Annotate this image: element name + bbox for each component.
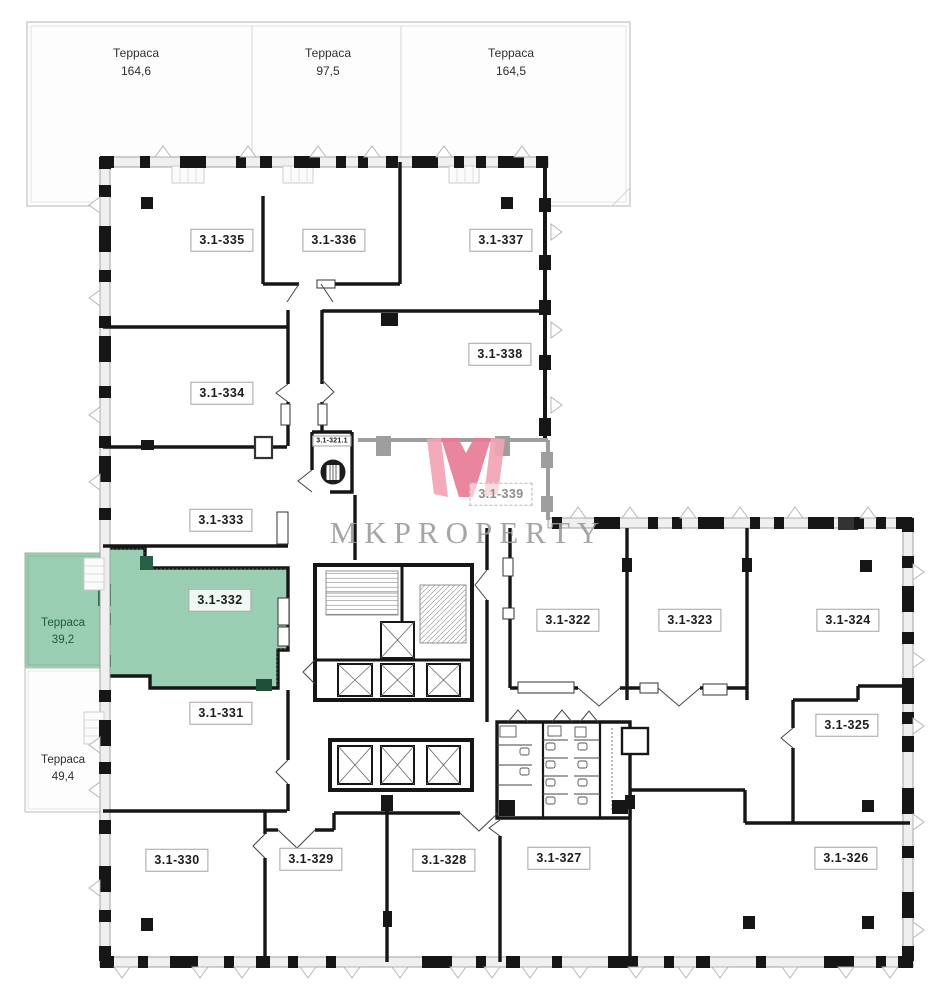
facade-column [902, 518, 914, 532]
window-vent-icon [913, 922, 924, 938]
floor-plan: Терраса 164,6 Терраса 97,5 Терраса 164,5… [0, 0, 947, 989]
window-vent-icon [114, 967, 130, 978]
facade-column [824, 956, 854, 968]
facade-column [224, 956, 234, 968]
facade-column [536, 156, 548, 168]
facade-column [902, 846, 914, 858]
unit-label-3-1-328[interactable]: 3.1-328 [412, 849, 475, 872]
facade-column [422, 956, 452, 968]
window-vent-icon [450, 967, 466, 978]
unit-label-3-1-326[interactable]: 3.1-326 [814, 847, 877, 870]
window-vent-icon [234, 967, 250, 978]
facade-column [138, 956, 148, 968]
facade-column [140, 156, 150, 168]
facade-column [876, 956, 886, 968]
facade-column [539, 355, 551, 370]
facade-column [854, 517, 864, 529]
facade-column [539, 418, 551, 436]
facade-column [774, 517, 784, 529]
terrace-label-49-4: Терраса 49,4 [41, 752, 85, 787]
facade-column [698, 517, 724, 529]
facade-column [902, 788, 914, 814]
facade-column [608, 956, 638, 968]
unit-label-3-1-330[interactable]: 3.1-330 [145, 849, 208, 872]
facade-column [170, 956, 198, 968]
facade-column [99, 226, 111, 252]
facade-column [902, 632, 914, 644]
facade-column [99, 910, 111, 922]
unit-label-3-1-334[interactable]: 3.1-334 [190, 382, 253, 405]
facade-column [539, 255, 551, 270]
window-vent-icon [89, 290, 100, 306]
lift-icon [321, 460, 346, 485]
window-vent-icon [882, 967, 898, 978]
unit-label-3-1-321-1[interactable]: 3.1-321.1 [312, 436, 351, 447]
facade-column [902, 678, 914, 704]
facade-column [539, 198, 551, 212]
facade-column [902, 946, 914, 961]
facade-column [99, 456, 111, 482]
facade-column [99, 946, 111, 961]
facade-column [552, 956, 562, 968]
facade-column [336, 156, 346, 168]
facade-column [256, 956, 270, 968]
window-vent-icon [551, 224, 562, 240]
highlighted-unit-area[interactable] [103, 548, 288, 691]
window-vent-icon [712, 967, 728, 978]
facade-column [498, 156, 524, 168]
unit-label-3-1-325[interactable]: 3.1-325 [815, 714, 878, 737]
facade-column [506, 956, 520, 968]
facade-column [99, 336, 111, 362]
window-vent-icon [192, 967, 208, 978]
window-vent-icon [89, 407, 100, 423]
window-vent-icon [551, 322, 562, 338]
facade-column [99, 690, 111, 702]
facade-column [236, 156, 246, 168]
facade-column [99, 185, 111, 197]
unit-label-3-1-327[interactable]: 3.1-327 [527, 847, 590, 870]
facade-column [756, 956, 766, 968]
facade-column [476, 956, 486, 968]
wall-block [381, 313, 398, 326]
facade-column [664, 956, 674, 968]
window-vent-icon [782, 967, 798, 978]
window-vent-icon [678, 967, 694, 978]
facade-column [808, 517, 834, 529]
window-vent-icon [572, 967, 588, 978]
unit-label-3-1-336[interactable]: 3.1-336 [302, 229, 365, 252]
unit-label-3-1-337[interactable]: 3.1-337 [469, 229, 532, 252]
unit-label-3-1-333[interactable]: 3.1-333 [189, 509, 252, 532]
window-vent-icon [732, 507, 748, 518]
facade-column [99, 157, 111, 169]
window-vent-icon [680, 507, 696, 518]
facade-column [902, 712, 914, 724]
mkproperty-logo-text: MKPROPERTY [330, 515, 607, 551]
window-vent-icon [913, 718, 924, 734]
window-vent-icon [300, 967, 316, 978]
facade-column [902, 892, 914, 918]
terrace-label-164-6: Терраса 164,6 [113, 44, 159, 80]
window-vent-icon [622, 507, 638, 518]
facade-column [672, 517, 682, 529]
unit-label-3-1-323[interactable]: 3.1-323 [658, 609, 721, 632]
window-vent-icon [484, 967, 500, 978]
window-vent-icon [392, 967, 408, 978]
unit-label-3-1-329[interactable]: 3.1-329 [279, 848, 342, 871]
facade-column [902, 586, 914, 612]
window-vent-icon [522, 967, 538, 978]
terrace-label-39-2: Терраса 39,2 [41, 615, 85, 650]
facade-column [539, 300, 551, 315]
facade-column [902, 736, 914, 752]
facade-column [99, 508, 111, 520]
window-vent-icon [787, 507, 803, 518]
window-vent-icon [838, 967, 854, 978]
window-vent-icon [860, 507, 876, 518]
facade-column [358, 156, 368, 168]
facade-column [99, 762, 111, 774]
unit-label-3-1-339[interactable]: 3.1-339 [469, 483, 532, 506]
facade-column [180, 156, 206, 168]
unit-label-3-1-338[interactable]: 3.1-338 [468, 343, 531, 366]
facade-column [454, 156, 464, 168]
unit-label-3-1-332[interactable]: 3.1-332 [188, 589, 251, 612]
facade-column [648, 517, 658, 529]
facade-column [99, 866, 111, 892]
window-vent-icon [628, 967, 644, 978]
unit-label-3-1-324[interactable]: 3.1-324 [816, 609, 879, 632]
facade-column [99, 820, 111, 834]
facade-column [750, 517, 760, 529]
facade-column [294, 156, 320, 168]
facade-column [99, 270, 111, 282]
facade-column [412, 156, 438, 168]
facade-column [876, 517, 886, 529]
window-vent-icon [913, 652, 924, 668]
facade-column [99, 720, 111, 746]
terrace-label-164-5: Терраса 164,5 [488, 44, 534, 80]
facade-column [288, 956, 298, 968]
unit-label-3-1-331[interactable]: 3.1-331 [189, 702, 252, 725]
facade-column [99, 386, 111, 398]
elevator-core [315, 565, 472, 700]
window-vent-icon [344, 967, 360, 978]
window-vent-icon [913, 814, 924, 830]
facade-column [476, 156, 486, 168]
unit-label-3-1-335[interactable]: 3.1-335 [190, 229, 253, 252]
staircase [420, 585, 466, 643]
terrace-label-97-5: Терраса 97,5 [305, 44, 351, 80]
window-vent-icon [551, 397, 562, 413]
window-vent-icon [89, 880, 100, 896]
facade-column [99, 316, 111, 328]
facade-column [326, 956, 336, 968]
facade-column [386, 156, 398, 168]
facade-column [902, 556, 914, 568]
facade-column [696, 956, 710, 968]
facade-column [260, 156, 272, 168]
window-vent-icon [89, 474, 100, 490]
facade-column [99, 436, 111, 448]
window-vent-icon [913, 564, 924, 580]
unit-label-3-1-322[interactable]: 3.1-322 [536, 609, 599, 632]
